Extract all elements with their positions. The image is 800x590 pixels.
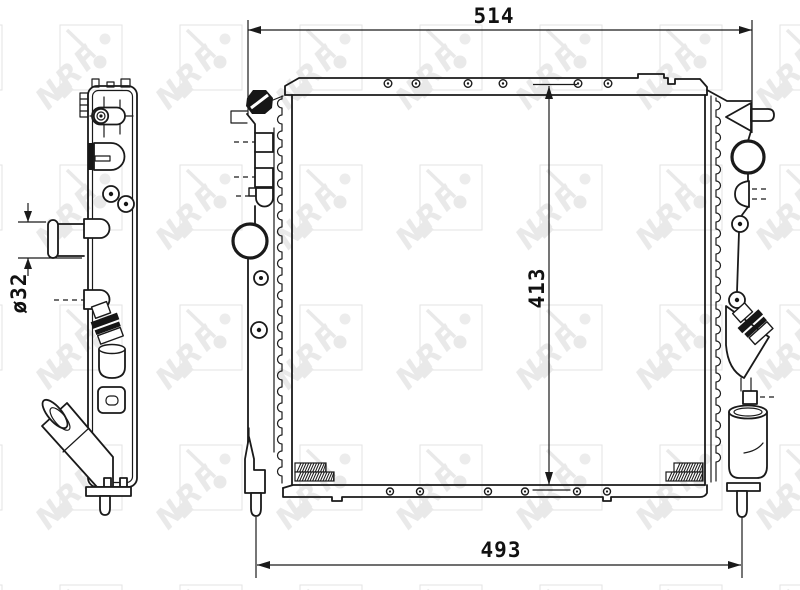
watermark-tile: NRF [149,445,242,537]
side-d-opening [88,143,125,170]
left-mounting-pin [251,493,261,516]
dimension-inlet-diameter-label: ø32 [7,253,31,333]
watermark-brand-text: NRF [29,177,109,257]
watermark-tile: NRF [629,165,722,257]
watermark-tile: NRF [509,305,602,397]
side-inlet-pipe [48,219,110,258]
watermark-tile: NRF [29,25,122,117]
watermark-tile: NRF [509,25,602,117]
dimension-mount-width-label: 493 [461,538,541,562]
return-fitting-arrow [726,103,751,131]
watermark-tile: NRF [149,25,242,117]
radiator-technical-drawing: NRFNRFNRFNRFNRFNRFNRFNRFNRFNRFNRFNRFNRFN… [0,0,800,590]
watermark-tile: NRF [389,445,482,537]
watermark-tile: NRF [29,585,122,590]
watermark-brand-text: NRF [629,177,709,257]
bottom-tank-holes [387,488,611,495]
watermark-tile: NRF [629,585,722,590]
right-tank-d-lug [735,181,749,207]
inlet-port [233,224,267,258]
side-ribbed-connector [80,93,88,117]
outlet-port [732,141,764,173]
overflow-stub [231,111,247,123]
watermark-tile: NRF [269,585,362,590]
watermark-tile: NRF [0,25,2,117]
watermark-tile: NRF [269,25,362,117]
right-header-crimp-tabs [716,98,721,481]
left-tank-lug [255,133,273,152]
top-tank-holes [384,80,612,88]
watermark-brand-text: NRF [749,37,800,117]
watermark-brand-text: NRF [269,177,349,257]
side-twin-bosses [103,186,134,212]
watermark-brand-text: NRF [269,317,349,397]
watermark-brand-text: NRF [269,37,349,117]
watermark-brand-text: NRF [149,177,229,257]
dimension-core-height-label: 413 [525,248,549,328]
watermark-tile: NRF [509,165,602,257]
watermark-tile: NRF [389,165,482,257]
watermark-brand-text: NRF [149,457,229,537]
side-inlet-pipe-flange [48,220,58,258]
watermark-brand-text: NRF [629,317,709,397]
watermark-tile: NRF [0,165,2,257]
watermark-brand-text: NRF [389,177,469,257]
watermark-tile: NRF [389,305,482,397]
return-fitting-stub [751,109,774,121]
watermark-tile: NRF [29,165,122,257]
left-tank-nub [249,188,256,196]
watermark-brand-text: NRF [29,317,109,397]
watermark-brand-text: NRF [149,37,229,117]
watermark-tile: NRF [149,305,242,397]
watermark-tile: NRF [749,585,800,590]
watermark-tile: NRF [509,585,602,590]
watermark-tile: NRF [0,305,2,397]
watermark-tile: NRF [389,585,482,590]
watermark-tile: NRF [389,25,482,117]
watermark-tile: NRF [269,165,362,257]
watermark-tile: NRF [749,165,800,257]
watermark-tile: NRF [0,445,2,537]
watermark-brand-text: NRF [629,37,709,117]
side-mounting-pin [100,496,110,515]
front-left-tank [231,90,283,516]
side-filler-cap [90,97,133,137]
radiator-front-view [231,74,775,517]
watermark-tile: NRF [749,25,800,117]
left-mounting-bracket [245,437,265,493]
watermark-tile: NRF [149,165,242,257]
left-header-crimp-tabs [278,96,283,483]
watermark-tile: NRF [269,305,362,397]
watermark-tile: NRF [0,585,2,590]
watermark-brand-text: NRF [29,37,109,117]
drain-stub [743,391,757,404]
core-fins-right [666,463,703,481]
dimension-overall-width-label: 514 [454,4,534,28]
right-mounting-pin [737,491,747,517]
watermark-brand-text: NRF [389,317,469,397]
left-tank-lug [255,168,273,187]
watermark-brand-text: NRF [389,37,469,117]
watermark-tile: NRF [629,305,722,397]
drawing-canvas: NRFNRFNRFNRFNRFNRFNRFNRFNRFNRFNRFNRFNRFN… [0,0,800,590]
left-tank-u-lug [256,188,273,207]
right-bracket-plate [727,483,760,491]
watermark-tile: NRF [629,25,722,117]
watermark-tile: NRF [149,585,242,590]
side-square-lug [98,387,125,413]
watermark-tile: NRF [629,445,722,537]
watermark-brand-text: NRF [149,317,229,397]
